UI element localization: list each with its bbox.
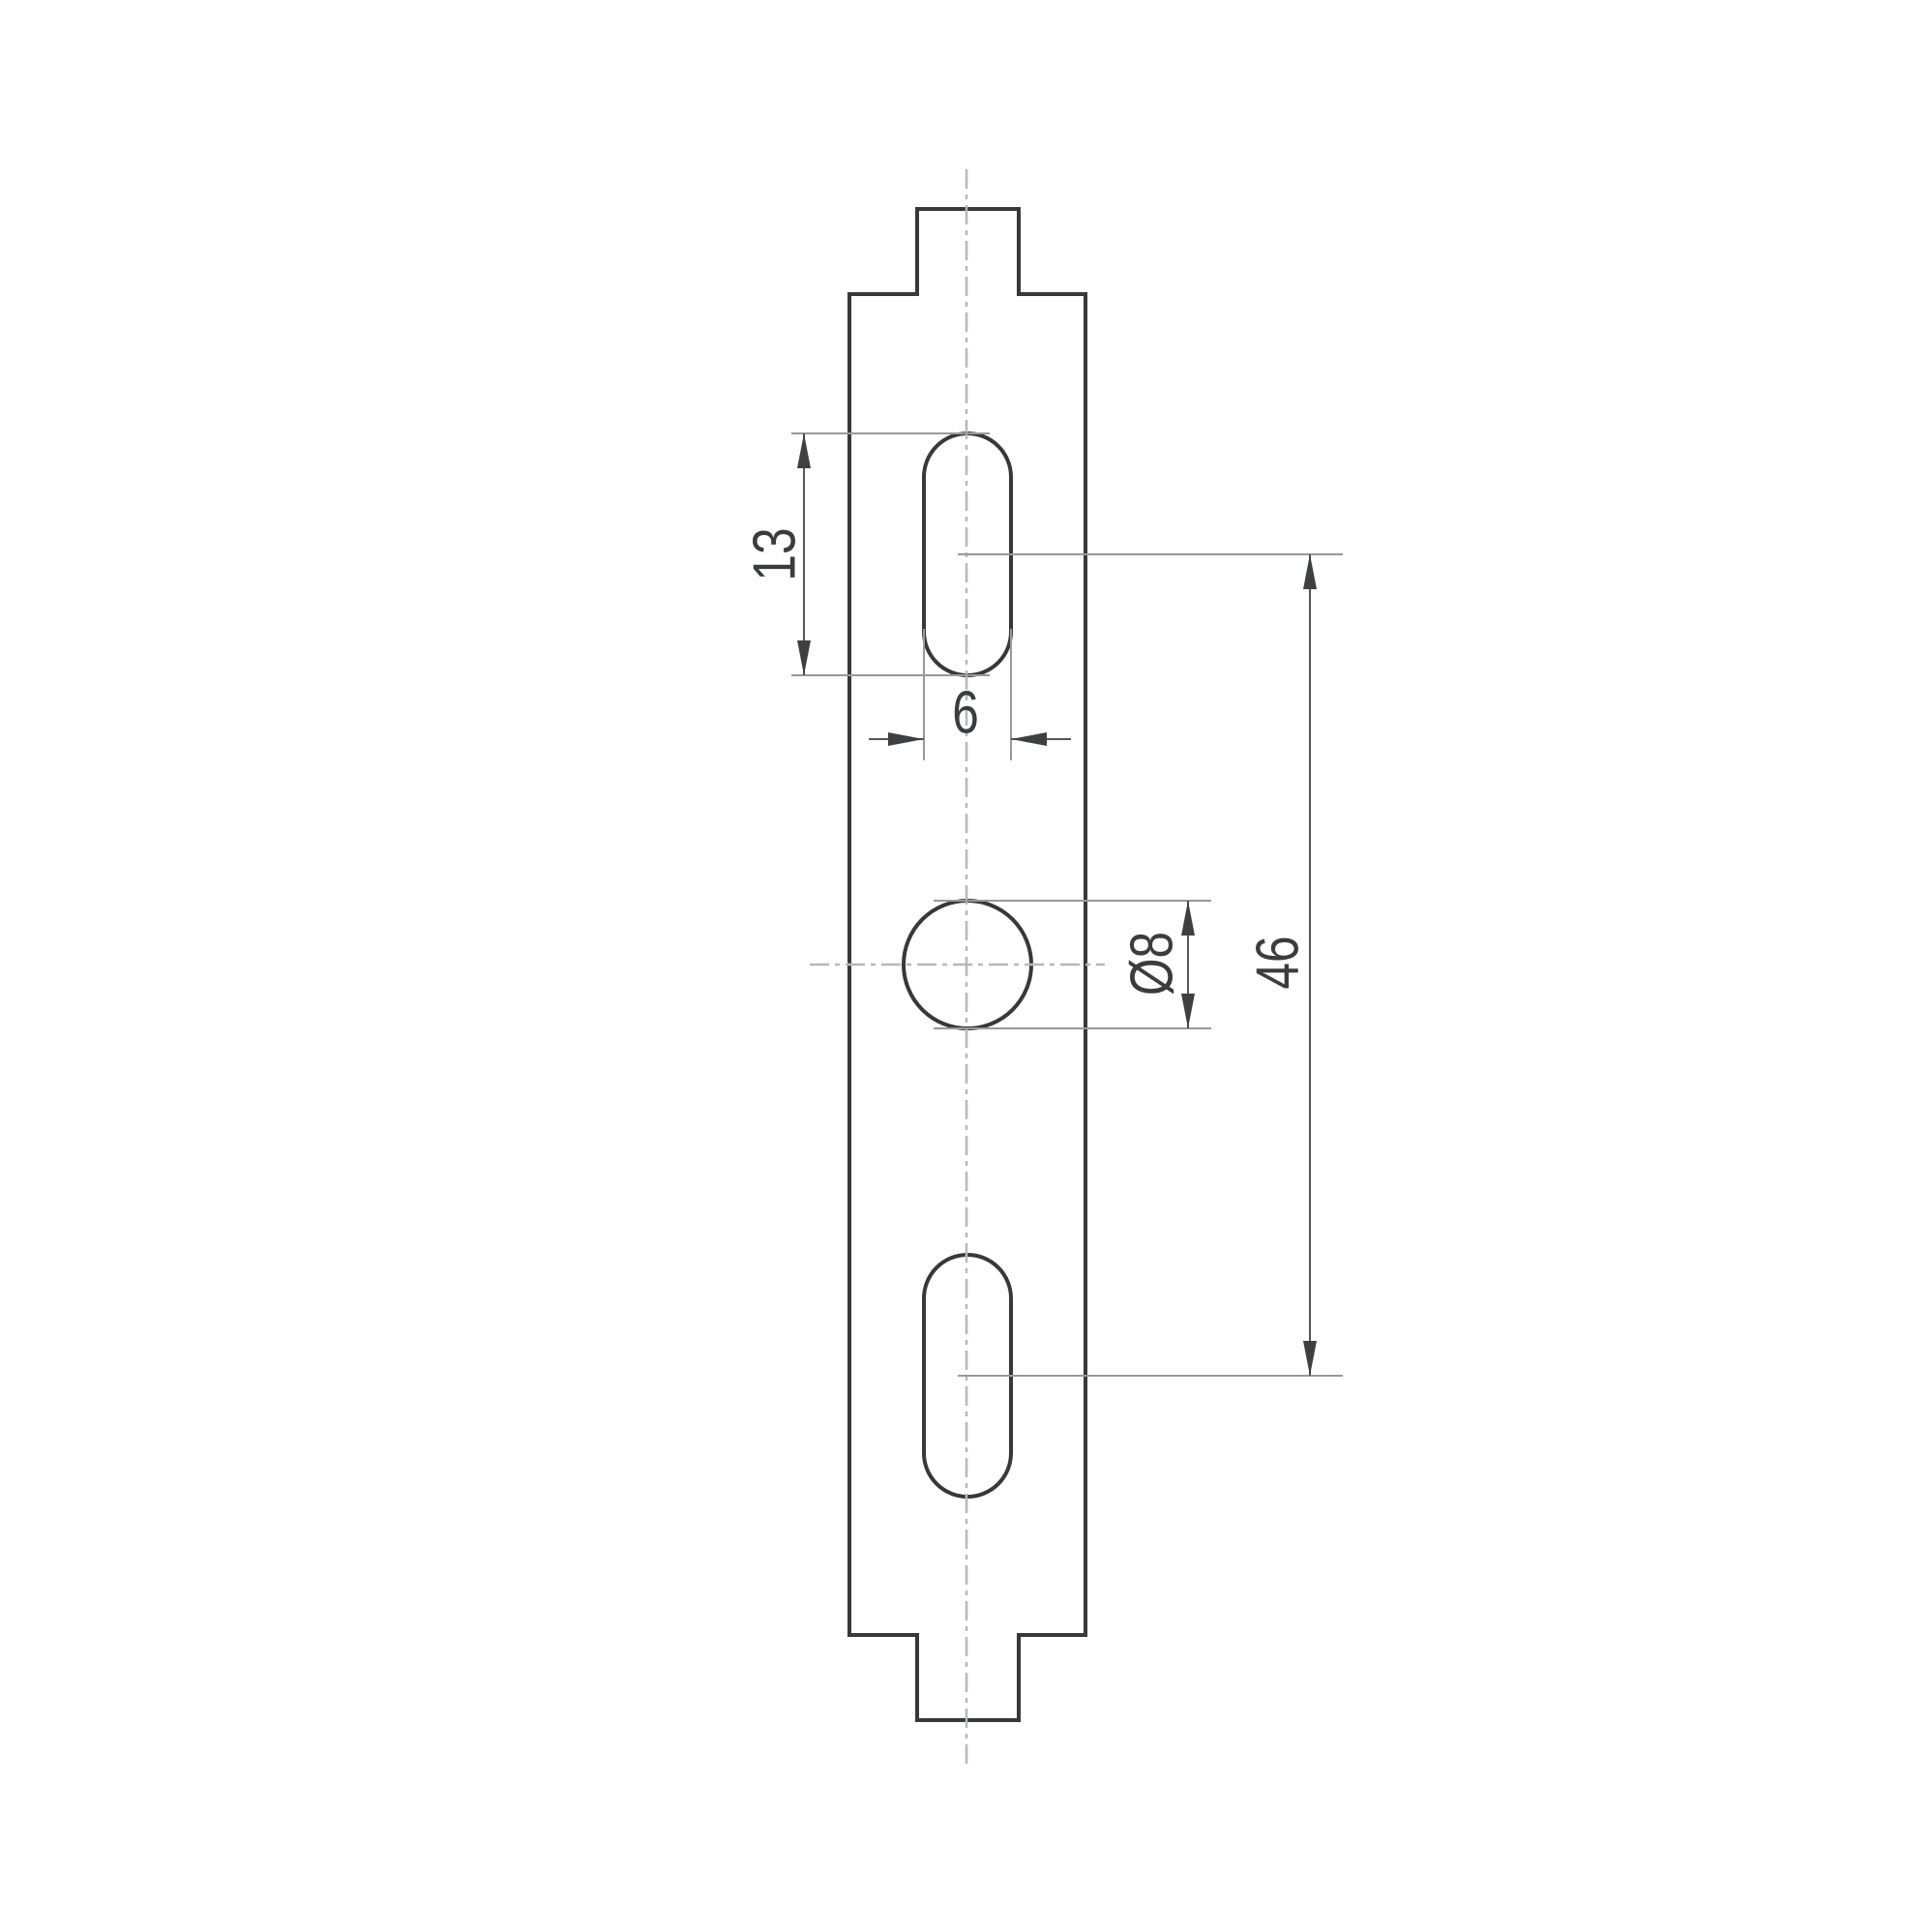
centerlines-group [810,169,1105,1768]
arrow-left-icon [1011,732,1047,746]
arrow-down-icon [1181,994,1195,1028]
arrow-right-icon [888,732,924,746]
technical-drawing: 13 6 Ø8 46 [0,0,1932,1932]
arrow-up-icon [1303,554,1317,589]
arrow-up-icon [1181,901,1195,936]
dim-label-slot-spacing: 46 [1243,936,1311,989]
dimension-lines-group [804,433,1310,1376]
dim-label-hole-diameter: Ø8 [1117,932,1185,996]
dimension-arrows-group [797,433,1317,1376]
arrow-up-icon [797,433,811,468]
extension-lines-group [791,433,1343,1376]
arrow-down-icon [1303,1341,1317,1376]
drawing-canvas: 13 6 Ø8 46 [0,0,1932,1932]
dim-label-slot-width: 6 [952,678,979,746]
arrow-down-icon [797,640,811,675]
dim-label-slot-length: 13 [740,527,808,580]
dimension-labels-group: 13 6 Ø8 46 [740,527,1311,996]
